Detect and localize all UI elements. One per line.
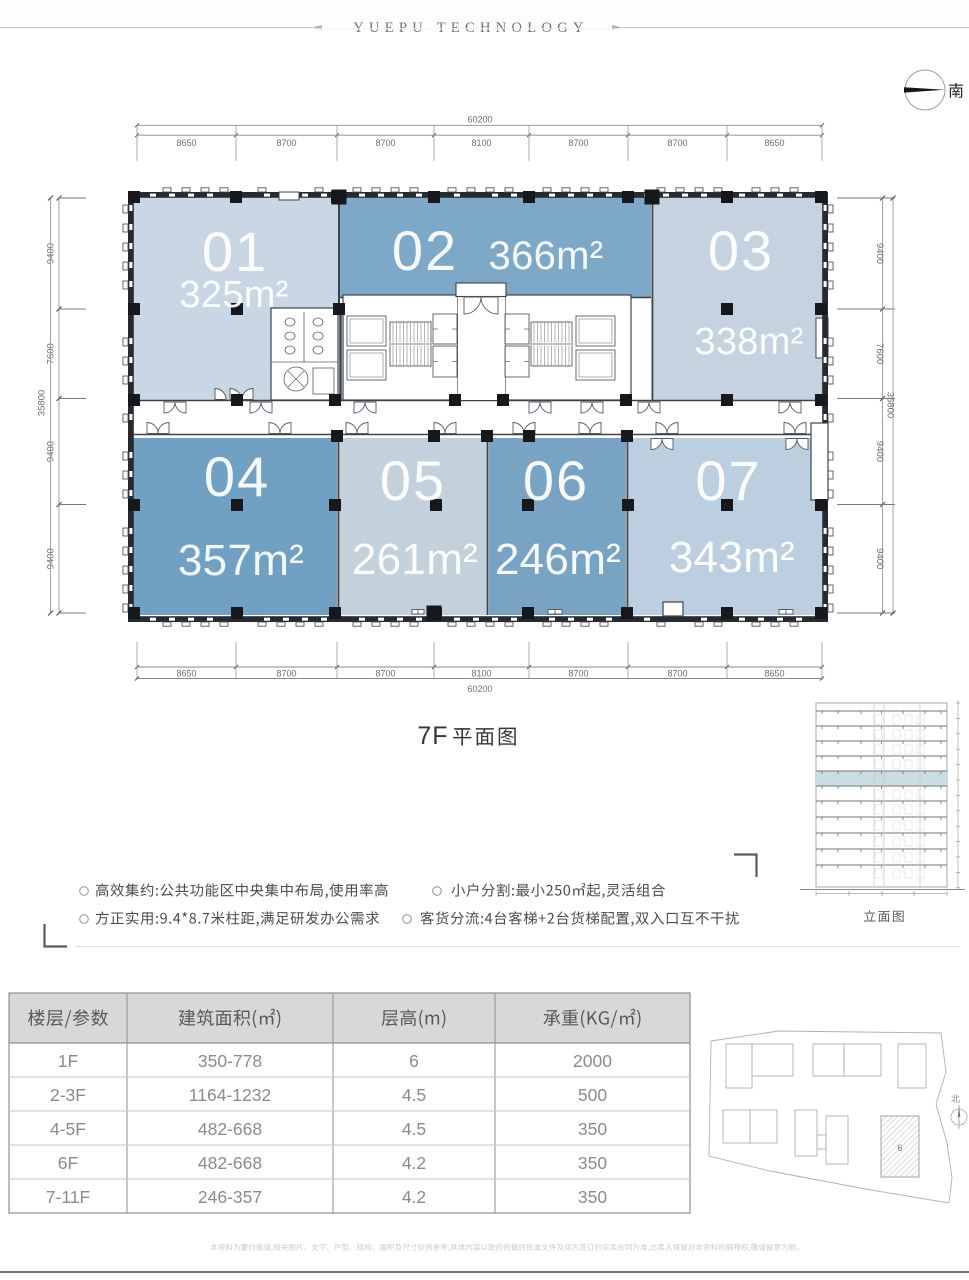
svg-text:357m²: 357m² — [178, 536, 304, 585]
svg-text:YUEPU TECHNOLOGY: YUEPU TECHNOLOGY — [353, 20, 589, 36]
svg-text:35800: 35800 — [37, 390, 48, 416]
svg-text:7600: 7600 — [46, 343, 57, 364]
svg-text:6: 6 — [409, 1051, 419, 1071]
svg-text:8700: 8700 — [375, 138, 395, 148]
svg-text:246m²: 246m² — [495, 535, 621, 584]
svg-text:500: 500 — [578, 1085, 607, 1105]
svg-text:6F: 6F — [58, 1153, 78, 1173]
svg-text:9400: 9400 — [46, 243, 57, 264]
svg-text:482-668: 482-668 — [198, 1119, 262, 1139]
svg-text:9400: 9400 — [874, 441, 885, 462]
svg-text:8700: 8700 — [276, 669, 296, 679]
svg-text:35800: 35800 — [885, 392, 896, 418]
svg-text:343m²: 343m² — [669, 533, 795, 582]
svg-text:325m²: 325m² — [179, 274, 288, 316]
svg-text:4-5F: 4-5F — [50, 1119, 86, 1139]
svg-text:4.2: 4.2 — [402, 1187, 426, 1207]
svg-text:4.5: 4.5 — [402, 1119, 426, 1139]
svg-text:246-357: 246-357 — [198, 1187, 262, 1207]
svg-text:9400: 9400 — [46, 441, 57, 462]
svg-text:2000: 2000 — [573, 1051, 612, 1071]
svg-text:7F: 7F — [417, 722, 448, 750]
svg-text:60200: 60200 — [467, 684, 492, 694]
svg-text:04: 04 — [204, 445, 270, 508]
svg-text:7600: 7600 — [874, 343, 885, 364]
svg-text:9400: 9400 — [46, 548, 57, 569]
svg-text:338m²: 338m² — [694, 321, 803, 363]
svg-text:8650: 8650 — [176, 669, 196, 679]
svg-text:60200: 60200 — [467, 115, 492, 125]
svg-text:9400: 9400 — [874, 243, 885, 264]
svg-text:05: 05 — [380, 449, 446, 512]
svg-text:03: 03 — [708, 219, 774, 282]
svg-text:350: 350 — [578, 1119, 607, 1139]
svg-text:8700: 8700 — [667, 138, 687, 148]
svg-text:366m²: 366m² — [489, 234, 604, 278]
svg-text:261m²: 261m² — [352, 535, 478, 584]
svg-text:4.5: 4.5 — [402, 1085, 426, 1105]
svg-text:6: 6 — [897, 1143, 902, 1153]
svg-text:8700: 8700 — [667, 669, 687, 679]
svg-text:8650: 8650 — [176, 138, 196, 148]
svg-text:482-668: 482-668 — [198, 1153, 262, 1173]
svg-text:8700: 8700 — [568, 138, 588, 148]
svg-text:350-778: 350-778 — [198, 1051, 262, 1071]
svg-text:9400: 9400 — [874, 548, 885, 569]
svg-text:8700: 8700 — [276, 138, 296, 148]
svg-text:7-11F: 7-11F — [46, 1187, 90, 1207]
svg-text:06: 06 — [523, 449, 589, 512]
svg-text:4.2: 4.2 — [402, 1153, 426, 1173]
svg-text:2-3F: 2-3F — [50, 1085, 86, 1105]
svg-text:8100: 8100 — [471, 669, 491, 679]
svg-text:8700: 8700 — [375, 669, 395, 679]
svg-text:350: 350 — [578, 1153, 607, 1173]
svg-text:8700: 8700 — [568, 669, 588, 679]
svg-text:07: 07 — [695, 449, 761, 512]
svg-text:8650: 8650 — [764, 138, 784, 148]
svg-text:8650: 8650 — [764, 669, 784, 679]
svg-text:1164-1232: 1164-1232 — [189, 1085, 271, 1105]
svg-text:02: 02 — [392, 219, 458, 282]
svg-text:350: 350 — [578, 1187, 607, 1207]
svg-text:1F: 1F — [58, 1051, 78, 1071]
svg-text:8100: 8100 — [471, 138, 491, 148]
